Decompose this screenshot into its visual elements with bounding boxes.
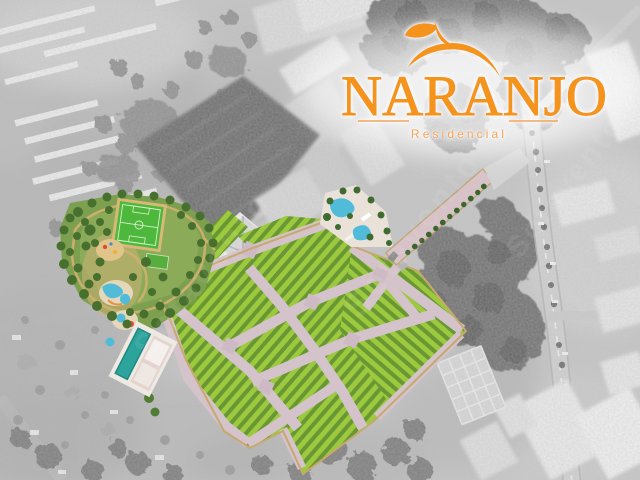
svg-text:Residencial: Residencial [411,127,507,141]
svg-text:NARANJO: NARANJO [341,65,607,128]
